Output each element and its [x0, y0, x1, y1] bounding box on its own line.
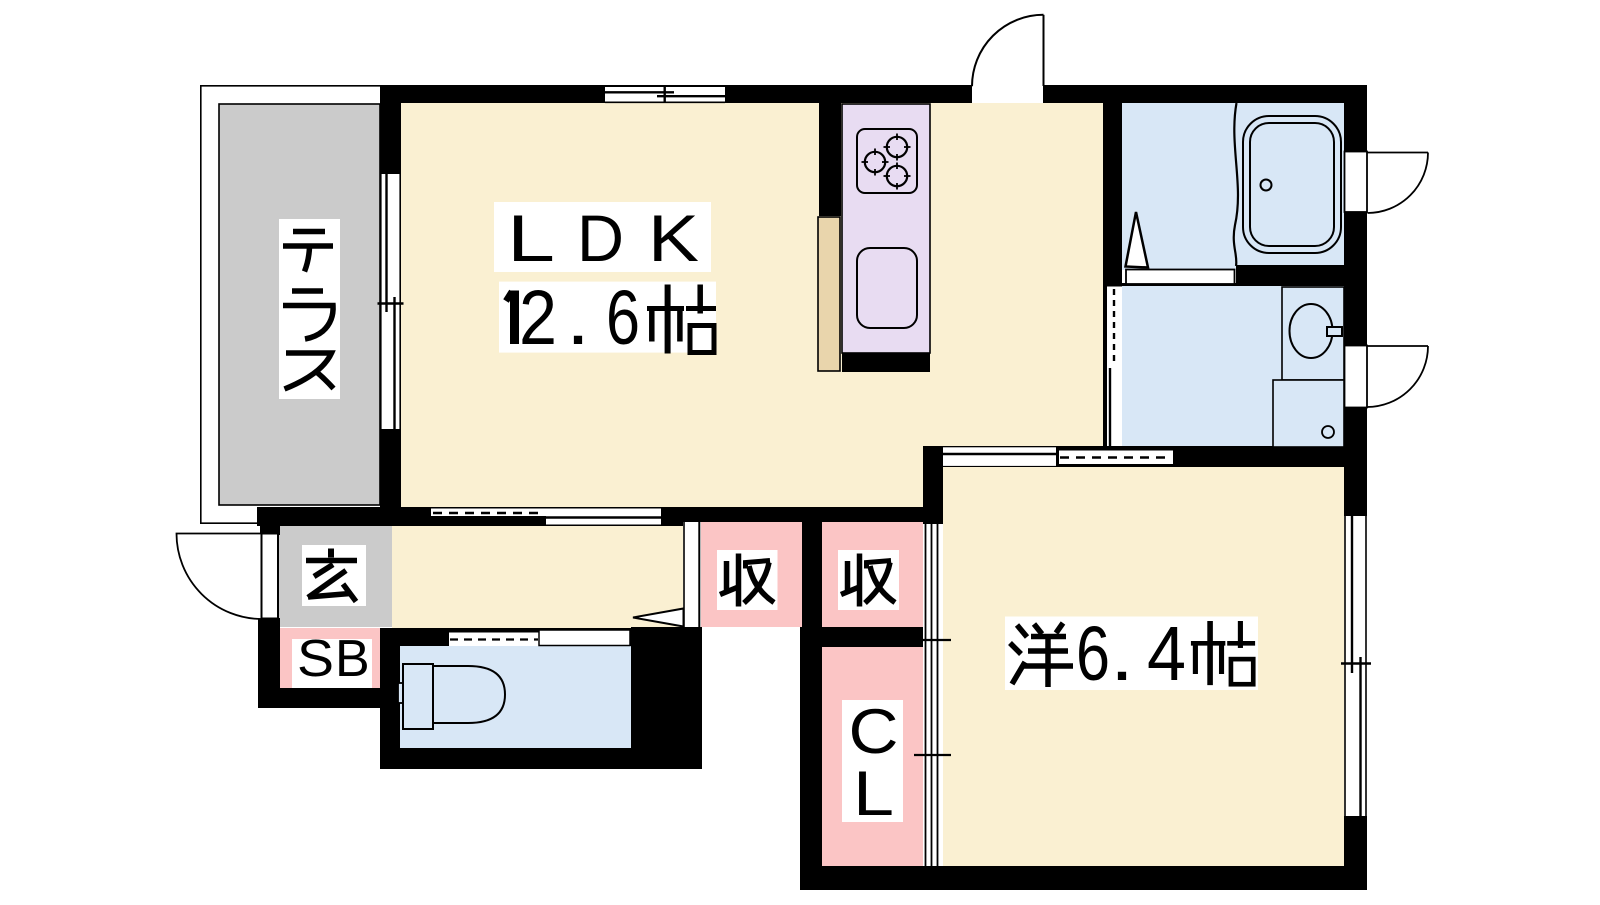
svg-text:6: 6 — [1076, 611, 1110, 697]
svg-text:6: 6 — [606, 275, 640, 361]
svg-text:K: K — [648, 201, 699, 275]
svg-text:S: S — [297, 630, 334, 688]
svg-text:L: L — [853, 759, 894, 829]
svg-text:2: 2 — [519, 275, 557, 361]
svg-text:L: L — [507, 201, 555, 275]
svg-text:C: C — [849, 697, 899, 767]
svg-text:.: . — [566, 275, 590, 361]
svg-text:D: D — [577, 201, 624, 275]
svg-text:B: B — [335, 630, 370, 688]
svg-text:4: 4 — [1147, 611, 1186, 697]
svg-text:.: . — [1110, 611, 1134, 697]
